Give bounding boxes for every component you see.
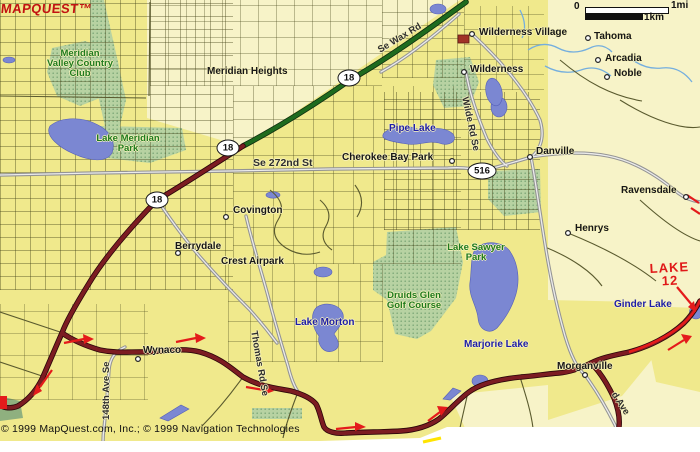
- park-label-line: Park: [421, 253, 531, 263]
- road-label-se-272nd-st: Se 272nd St: [253, 157, 313, 169]
- park-label-druids-glen: Druids Glen Golf Course: [359, 291, 469, 311]
- copyright-notice: © 1999 MapQuest.com, Inc.; © 1999 Naviga…: [1, 423, 300, 435]
- park-label-line: Park: [73, 144, 183, 154]
- place-label-ravensdale: Ravensdale: [621, 185, 677, 196]
- lake-label-ginder-lake: Ginder Lake: [614, 299, 672, 310]
- park-label-line: Golf Course: [359, 301, 469, 311]
- place-label-arcadia: Arcadia: [605, 53, 642, 64]
- place-label-henrys: Henrys: [575, 223, 609, 234]
- highway-shield-18-mid: 18: [217, 140, 240, 157]
- place-label-crest-airpark: Crest Airpark: [221, 256, 284, 267]
- place-markers: [136, 32, 689, 378]
- scale-zero-label: 0: [574, 1, 580, 12]
- place-label-danville: Danville: [536, 146, 574, 157]
- lake-label-marjorie-lake: Marjorie Lake: [464, 339, 528, 350]
- scale-mile-label: 1mi: [671, 0, 688, 11]
- scale-bar: 0 1mi 1km: [574, 0, 700, 24]
- place-label-morganville: Morganville: [557, 361, 613, 372]
- place-label-cherokee-bay-park: Cherokee Bay Park: [342, 152, 433, 163]
- highway-shield-18-north: 18: [338, 70, 361, 87]
- lake-label-pipe-lake: Pipe Lake: [389, 123, 436, 134]
- handwritten-annotation-lake12: LAKE 12: [649, 260, 690, 288]
- lake-label-lake-morton: Lake Morton: [295, 317, 354, 328]
- road-label-148th-ave-se: 148th Ave Se: [101, 362, 112, 420]
- place-label-wilderness: Wilderness: [470, 64, 523, 75]
- park-label-line: Club: [25, 69, 135, 79]
- highway-shield-18-south: 18: [146, 192, 169, 209]
- park-label-lake-sawyer-park: Lake Sawyer Park: [421, 243, 531, 263]
- place-label-noble: Noble: [614, 68, 642, 79]
- place-label-wilderness-village: Wilderness Village: [479, 27, 567, 38]
- park-label-meridian-valley-cc: Meridian Valley Country Club: [25, 49, 135, 79]
- mapquest-logo: MAPQUEST™: [0, 1, 93, 16]
- place-label-meridian-heights: Meridian Heights: [207, 66, 288, 77]
- scale-km-label: 1km: [644, 12, 664, 23]
- place-label-tahoma: Tahoma: [594, 31, 632, 42]
- map-canvas[interactable]: MAPQUEST™ 0 1mi 1km Meridian Heights Wil…: [0, 0, 700, 452]
- place-label-covington: Covington: [233, 205, 282, 216]
- highway-shield-516: 516: [468, 163, 497, 180]
- place-label-wynaco: Wynaco: [143, 345, 181, 356]
- building-icon: [458, 35, 469, 43]
- scale-km-bar: [585, 14, 643, 20]
- park-label-lake-meridian-park: Lake Meridian Park: [73, 134, 183, 154]
- place-label-berrydale: Berrydale: [175, 241, 221, 252]
